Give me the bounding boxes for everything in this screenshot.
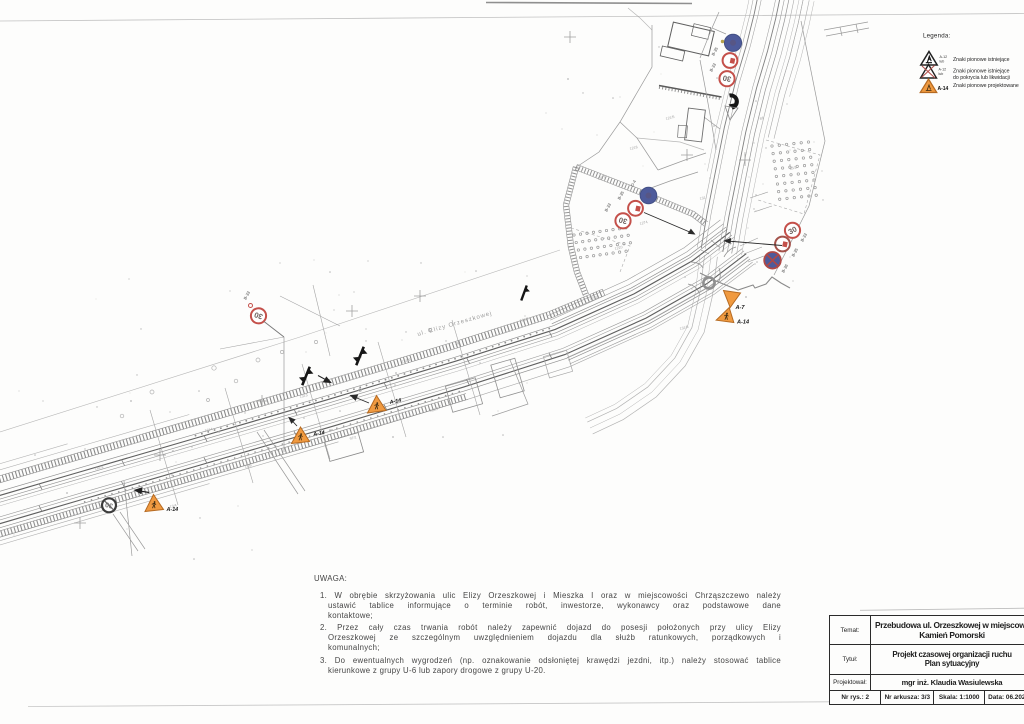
svg-text:A-7: A-7 [735,305,746,311]
svg-text:Znaki pionowe istniejące: Znaki pionowe istniejące [953,69,1010,75]
svg-text:A-14: A-14 [166,507,179,513]
svg-text:Znaki pionowe projektowane: Znaki pionowe projektowane [953,83,1019,89]
svg-text:Legenda:: Legenda: [923,33,950,40]
svg-text:A-14: A-14 [736,320,750,326]
svg-text:Znaki pionowe istniejące: Znaki pionowe istniejące [953,57,1010,63]
svg-text:lub: lub [939,72,944,76]
svg-text:A-12: A-12 [940,55,948,59]
svg-text:do pokrycia lub likwidacji: do pokrycia lub likwidacji [953,75,1010,81]
svg-text:A-14: A-14 [938,86,949,92]
svg-text:lub: lub [940,60,945,64]
svg-text:A-12: A-12 [939,68,947,72]
